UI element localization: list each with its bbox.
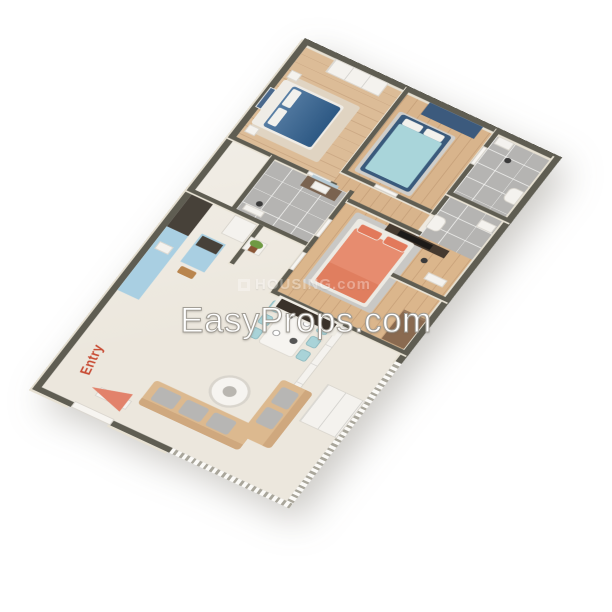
apartment-plan: Entry [32, 38, 562, 508]
floor-plan-render: Entry HOUSING.com EasyProps.com [0, 0, 612, 612]
watermark-easyprops: EasyProps.com [180, 301, 432, 341]
watermark-housing-text: HOUSING.com [255, 276, 371, 293]
watermark-housing: HOUSING.com [238, 276, 371, 293]
housing-logo-icon [238, 279, 250, 291]
